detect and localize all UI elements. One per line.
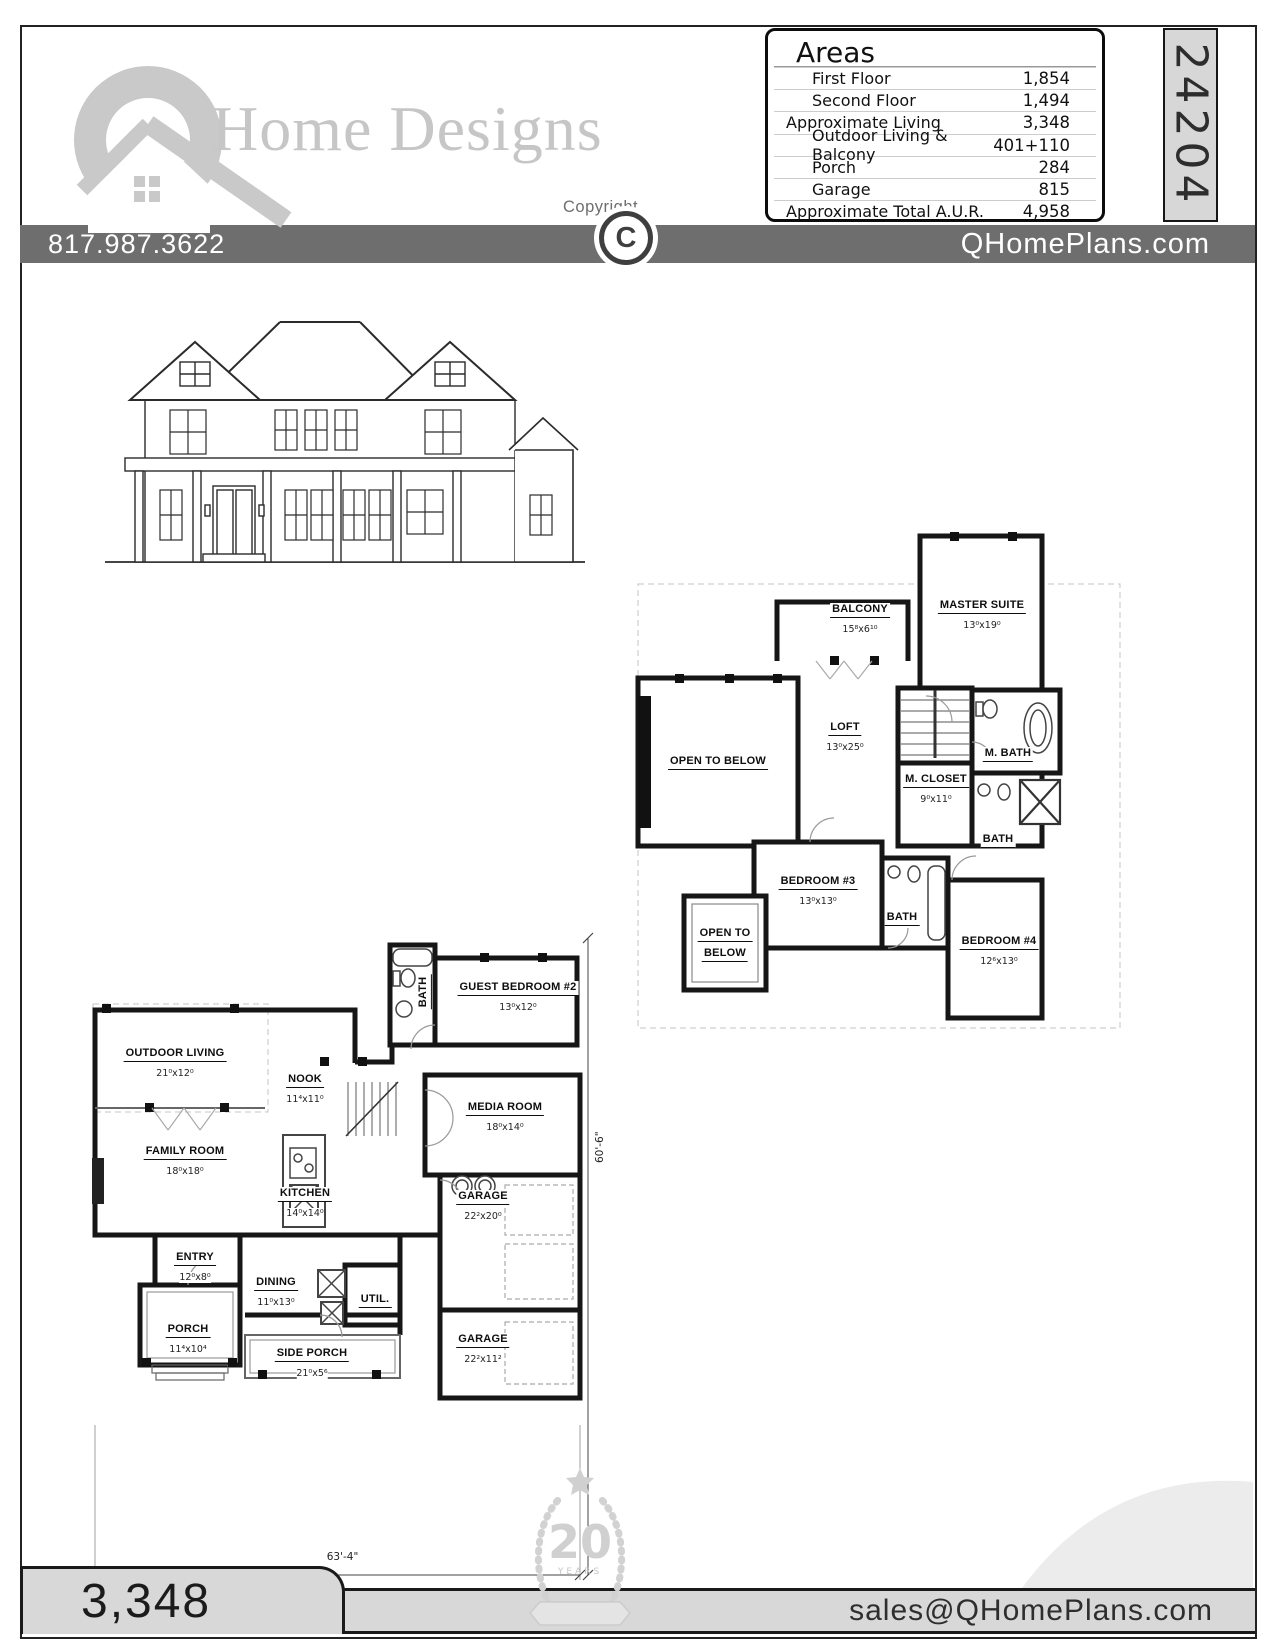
room-label-media-room: MEDIA ROOM 18⁰x14⁰ (466, 1096, 544, 1135)
area-value: 401+110 (993, 136, 1070, 155)
stairs-icon (346, 1082, 398, 1136)
area-label: Second Floor (786, 91, 916, 110)
room-label-garage: GARAGE 22²x20⁰ (456, 1185, 509, 1224)
plan-number-badge: 24204 (1163, 28, 1218, 222)
room-label-m-closet: M. CLOSET 9⁰x11⁰ (903, 768, 969, 807)
room-label-m-bath: M. BATH (983, 742, 1033, 762)
plan-sheet: Home Designs Copyright C 817.987.3622 QH… (0, 0, 1275, 1650)
badge-number: 20 (548, 1515, 612, 1569)
badge-ribbon (530, 1602, 630, 1625)
copyright-icon: C (599, 211, 653, 265)
areas-title: Areas (774, 31, 1096, 67)
email-address: sales@QHomePlans.com (849, 1594, 1213, 1628)
util-closet-icon (318, 1270, 345, 1324)
fireplace-icon (92, 1158, 104, 1204)
sink-icon (396, 1001, 412, 1017)
first-floor-plan: OUTDOOR LIVING 21⁰x12⁰ NOOK 11⁴x11⁰ GUES… (90, 930, 595, 1425)
website-url: QHomePlans.com (961, 228, 1210, 261)
badge-label: YEARS (557, 1567, 602, 1577)
plan-number: 24204 (1165, 43, 1216, 208)
living-area-tab: 3,348 (20, 1566, 345, 1634)
room-label-bath: BATH (981, 828, 1016, 848)
room-label-family-room: FAMILY ROOM 18⁰x18⁰ (144, 1140, 227, 1179)
area-value: 4,958 (1023, 202, 1070, 221)
room-label-guest-bedroom: GUEST BEDROOM #2 13⁰x12⁰ (458, 976, 579, 1015)
toilet-icon (976, 700, 997, 718)
area-value: 815 (1039, 180, 1071, 199)
room-label-balcony: BALCONY 15⁸x6¹⁰ (830, 598, 890, 637)
area-value: 284 (1039, 158, 1071, 177)
area-label: Garage (786, 180, 871, 199)
swoosh-graphic (1022, 1466, 1253, 1588)
area-label: Approximate Total A.U.R. (786, 202, 984, 221)
area-value: 1,494 (1023, 91, 1070, 110)
room-label-bath: BATH (412, 975, 432, 1010)
sink-icon (978, 784, 990, 796)
room-label-bath: BATH (885, 906, 920, 926)
room-label-open-to-below: OPEN TO BELOW (668, 750, 768, 770)
second-floor-plan: BALCONY 15⁸x6¹⁰ MASTER SUITE 13⁰x19⁰ LOF… (630, 528, 1135, 1035)
living-area-value: 3,348 (23, 1574, 211, 1629)
room-label-master-suite: MASTER SUITE 13⁰x19⁰ (938, 594, 1026, 633)
area-row: First Floor 1,854 (774, 67, 1096, 89)
sink-icon (888, 866, 900, 878)
area-row: Second Floor 1,494 (774, 89, 1096, 111)
area-row: Garage 815 (774, 178, 1096, 200)
area-row: Outdoor Living & Balcony 401+110 (774, 134, 1096, 156)
area-label: First Floor (786, 69, 891, 88)
room-label-util: UTIL. (359, 1288, 392, 1308)
room-label-garage-side: GARAGE 22²x11² (456, 1328, 509, 1367)
front-elevation-drawing (85, 300, 590, 570)
area-value: 1,854 (1023, 69, 1070, 88)
room-label-side-porch: SIDE PORCH 21⁰x5⁶ (275, 1342, 349, 1381)
area-row: Approximate Total A.U.R. 4,958 (774, 200, 1096, 222)
width-dimension-text: 63'-4" (324, 1551, 362, 1563)
brand-name: Home Designs (212, 92, 603, 166)
room-label-outdoor-living: OUTDOOR LIVING 21⁰x12⁰ (124, 1042, 227, 1081)
shower-icon (1020, 780, 1060, 824)
room-label-entry: ENTRY 12⁰x8⁰ (174, 1246, 216, 1285)
room-label-kitchen: KITCHEN 14⁰x14⁰ (278, 1182, 332, 1221)
room-label-porch: PORCH 11⁴x10⁴ (166, 1318, 211, 1357)
height-dimension-text: 60'-6" (594, 1131, 606, 1163)
phone-number: 817.987.3622 (48, 229, 225, 260)
room-label-loft: LOFT 13⁰x25⁰ (826, 716, 863, 755)
areas-panel: Areas First Floor 1,854 Second Floor 1,4… (765, 28, 1105, 222)
toilet-icon (908, 866, 920, 882)
area-value: 3,348 (1023, 113, 1070, 132)
anniversary-badge-icon: 20 YEARS (520, 1462, 640, 1640)
toilet-icon (998, 784, 1010, 800)
room-label-bedroom-4: BEDROOM #4 12⁶x13⁰ (960, 930, 1039, 969)
room-label-nook: NOOK 11⁴x11⁰ (286, 1068, 324, 1107)
room-label-open-to-below: OPEN TO BELOW (698, 922, 753, 962)
room-label-dining: DINING 11⁰x13⁰ (254, 1271, 298, 1310)
thick-wall (638, 696, 651, 828)
area-label: Porch (786, 158, 856, 177)
tub-icon (393, 949, 432, 966)
room-label-bedroom-3: BEDROOM #3 13⁰x13⁰ (779, 870, 858, 909)
tub-icon (928, 866, 945, 940)
